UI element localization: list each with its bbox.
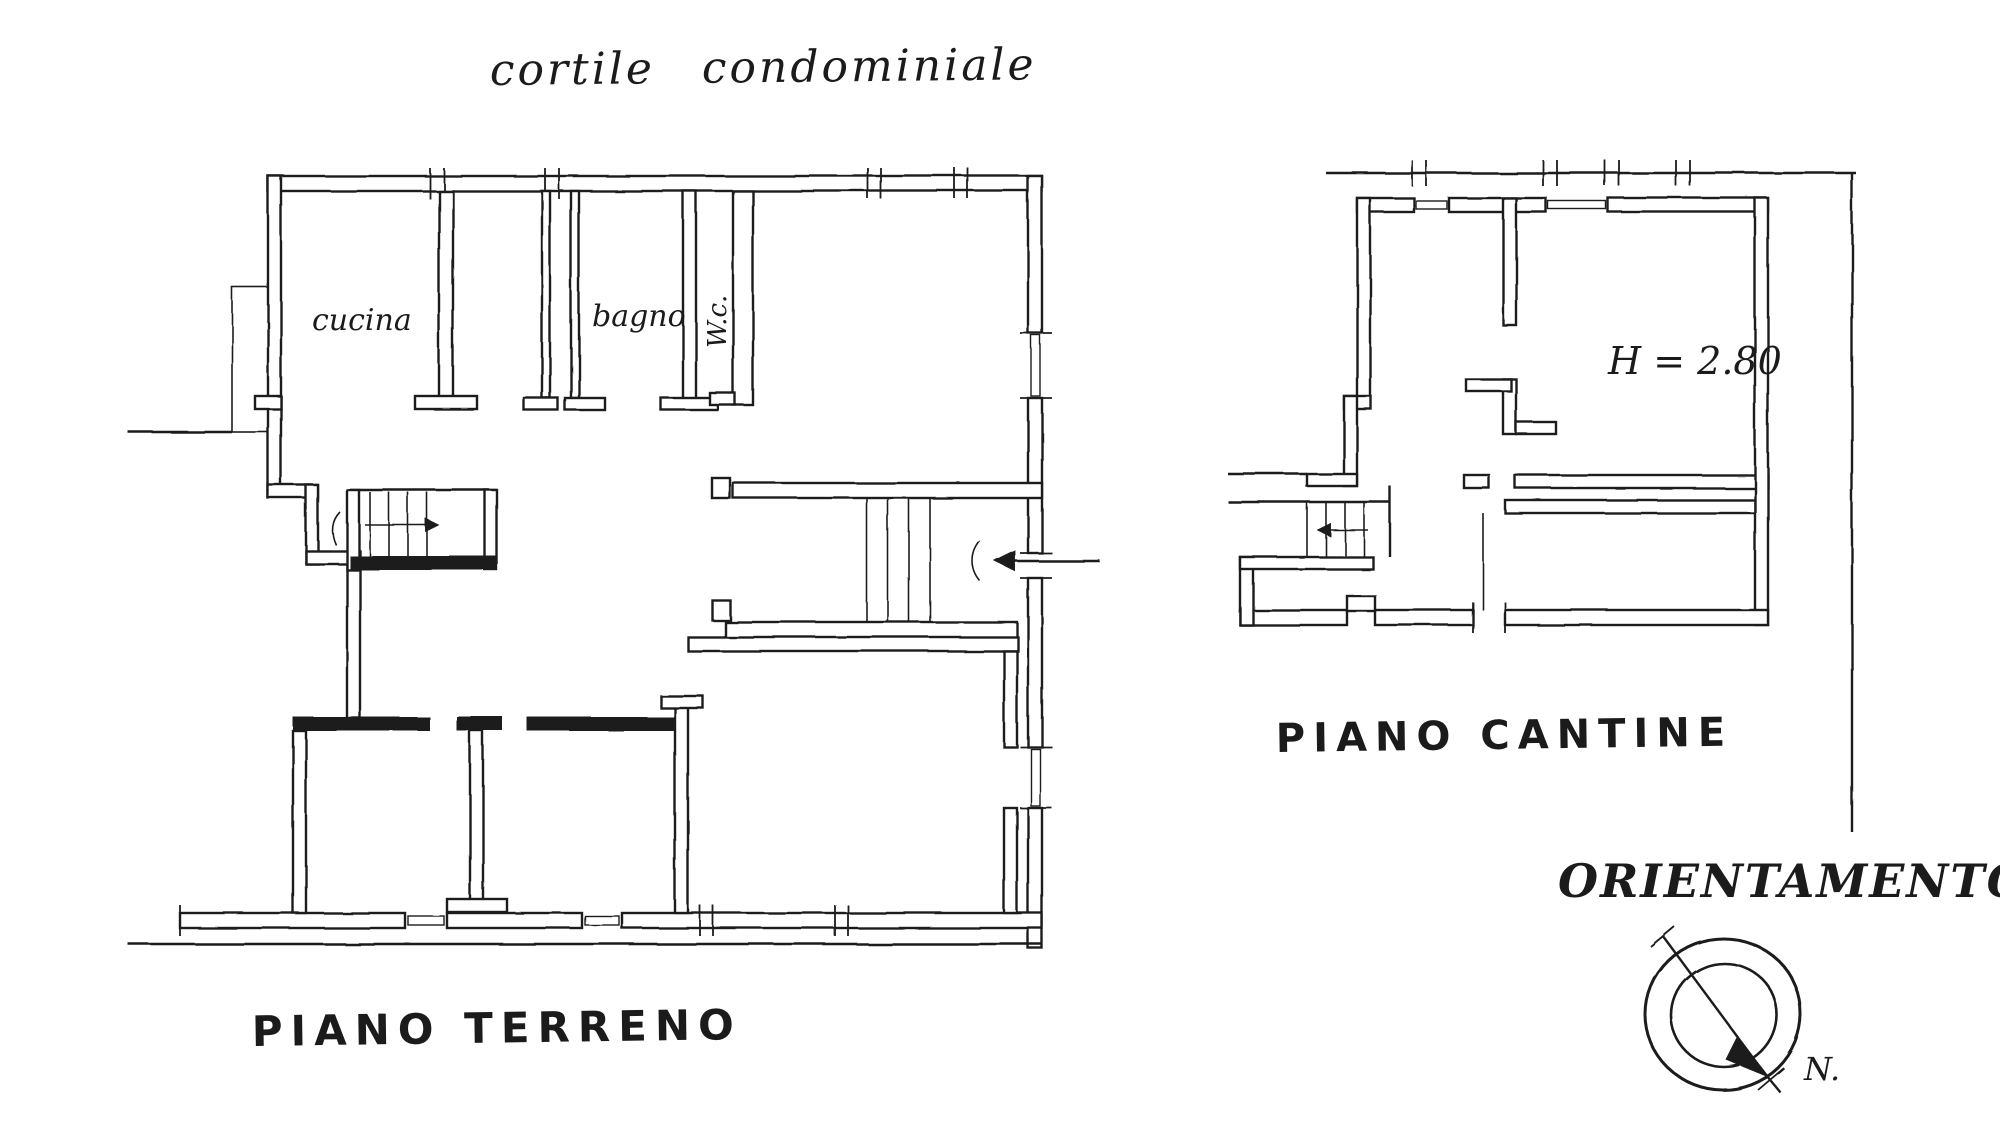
orientation-title: ORIENTAMENTO <box>1558 854 2000 908</box>
basement-title: PIANO CANTINE <box>1275 710 1733 762</box>
door-step <box>1347 596 1375 611</box>
ground-floor-title: PIANO TERRENO <box>251 1000 742 1056</box>
balcony <box>232 287 268 432</box>
ground-floor-outer-walls <box>128 168 1052 948</box>
room-label-bathroom: bagno <box>592 299 686 334</box>
window <box>408 916 444 925</box>
entrance-door-swing <box>973 541 981 581</box>
window <box>1416 201 1447 209</box>
basement-walls <box>1240 198 1768 633</box>
labels: cortile condominiale cucina bagno W.c. H… <box>251 39 2000 1088</box>
room-label-kitchen: cucina <box>312 303 412 338</box>
window <box>1031 335 1040 396</box>
stairwell <box>867 498 1100 622</box>
scanned-floor-plan-sheet: cortile condominiale cucina bagno W.c. H… <box>0 0 2000 1125</box>
orientation-compass <box>1645 926 1801 1092</box>
door-swing <box>333 512 340 545</box>
ceiling-height-note: H = 2.80 <box>1607 339 1782 383</box>
ground-floor-plan <box>128 168 1100 948</box>
north-label: N. <box>1803 1050 1840 1088</box>
floor-plan-drawing: cortile condominiale cucina bagno W.c. H… <box>0 0 2000 1125</box>
window <box>1548 201 1606 209</box>
courtyard-label: cortile condominiale <box>490 39 1037 96</box>
window <box>585 916 619 925</box>
room-label-wc: W.c. <box>703 295 733 348</box>
window <box>1031 749 1040 806</box>
main-staircase <box>333 490 497 570</box>
